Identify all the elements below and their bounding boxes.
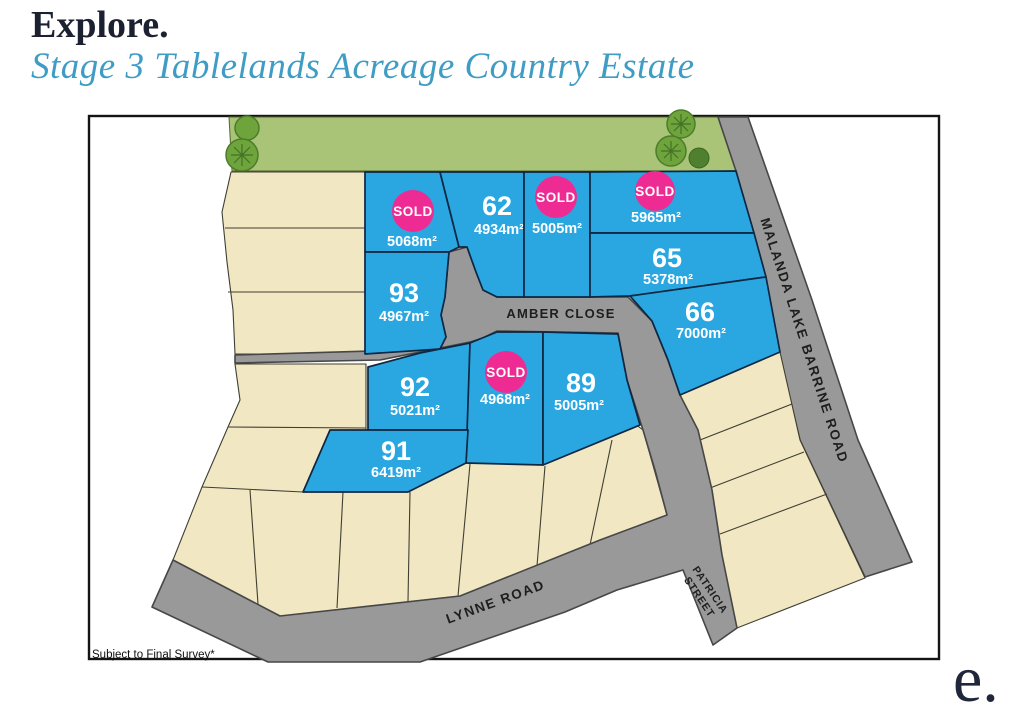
page-header: Explore. Stage 3 Tablelands Acreage Coun…: [31, 6, 695, 85]
lot-area: 7000m²: [676, 326, 726, 342]
sold-badge: SOLD: [635, 171, 675, 211]
tree-branches: [231, 144, 253, 166]
lot-area: 4968m²: [480, 392, 530, 408]
brand-logo: e.: [953, 643, 999, 708]
tree-icon: [235, 116, 259, 140]
lot-number: 89: [566, 368, 596, 398]
tree-branches: [661, 141, 681, 161]
tree-icon: [689, 148, 709, 168]
lot-number: 66: [685, 297, 715, 327]
lot-area: 4934m²: [474, 222, 524, 238]
lot-number: 92: [400, 372, 430, 402]
tree-branches: [671, 114, 691, 134]
lot-number: 65: [652, 243, 682, 273]
page-subtitle: Stage 3 Tablelands Acreage Country Estat…: [31, 48, 695, 85]
lot-area: 5021m²: [390, 403, 440, 419]
sold-badge-label: SOLD: [486, 365, 526, 380]
sold-badge-label: SOLD: [393, 204, 433, 219]
sold-badge: SOLD: [392, 190, 434, 232]
lot-sold-4968[interactable]: 4968m² SOLD: [466, 332, 543, 465]
sold-badge: SOLD: [535, 176, 577, 218]
lot-number: 62: [482, 191, 512, 221]
lot-area: 5005m²: [554, 398, 604, 414]
sold-badge-label: SOLD: [635, 184, 675, 199]
lot-sold-5005[interactable]: 5005m² SOLD: [524, 172, 590, 297]
lot-area: 6419m²: [371, 465, 421, 481]
lot-sold-5965[interactable]: 5965m² SOLD: [590, 171, 754, 233]
lot-93[interactable]: 93 4967m²: [365, 252, 449, 354]
page-title: Explore.: [31, 6, 695, 46]
lot-area: 5378m²: [643, 272, 693, 288]
survey-disclaimer: Subject to Final Survey*: [92, 649, 215, 661]
lot-number: 91: [381, 436, 411, 466]
lot-area: 5068m²: [387, 234, 437, 250]
lot-area: 5965m²: [631, 210, 681, 226]
sold-badge-label: SOLD: [536, 190, 576, 205]
lot-number: 93: [389, 278, 419, 308]
lot-area: 5005m²: [532, 221, 582, 237]
sold-badge: SOLD: [485, 351, 527, 393]
other-stage-lots-left: [222, 172, 365, 354]
road-label-amber-close: AMBER CLOSE: [506, 306, 615, 321]
estate-map: 5068m² SOLD 62 4934m² 5005m² SOLD 5965m²…: [0, 0, 1024, 708]
lot-area: 4967m²: [379, 309, 429, 325]
